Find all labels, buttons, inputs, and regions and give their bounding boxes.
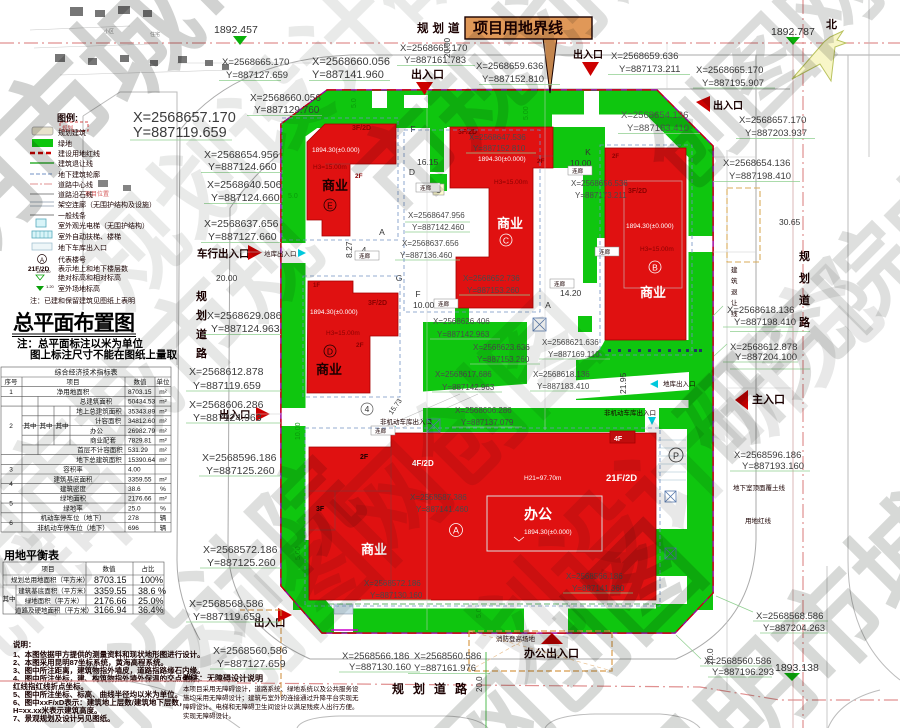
svg-text:H3=15.00m: H3=15.00m (326, 330, 360, 337)
svg-text:连廊: 连廊 (572, 167, 584, 175)
svg-text:%: % (160, 486, 166, 493)
svg-text:A: A (40, 258, 44, 264)
svg-text:Y=887130.160: Y=887130.160 (349, 662, 411, 673)
svg-text:室外场地标高: 室外场地标高 (58, 284, 100, 293)
svg-text:非机动车库出入口: 非机动车库出入口 (604, 408, 656, 417)
svg-text:序号: 序号 (5, 377, 19, 386)
svg-text:用地红线: 用地红线 (745, 516, 772, 525)
svg-text:D: D (327, 347, 333, 357)
svg-text:连廊: 连廊 (438, 300, 450, 308)
svg-text:F: F (415, 289, 420, 299)
svg-text:占比: 占比 (142, 564, 156, 573)
svg-text:Y=887136.460: Y=887136.460 (400, 251, 453, 260)
svg-text:1890.00: 1890.00 (36, 269, 51, 274)
svg-text:实现无障碍设计。: 实现无障碍设计。 (183, 711, 235, 720)
svg-text:总平面布置图: 总平面布置图 (13, 311, 135, 335)
svg-text:10.00: 10.00 (295, 422, 302, 440)
svg-text:5.0: 5.0 (288, 193, 298, 200)
svg-text:E: E (327, 201, 333, 211)
svg-text:K: K (585, 147, 591, 157)
svg-text:1894.30(±0.000): 1894.30(±0.000) (310, 309, 358, 316)
svg-text:X=2568659.636: X=2568659.636 (611, 51, 678, 62)
svg-text:3166.94: 3166.94 (94, 605, 127, 615)
svg-text:C: C (503, 236, 509, 246)
svg-text:1.20: 1.20 (46, 284, 55, 289)
svg-text:30.65: 30.65 (779, 217, 801, 227)
svg-text:21.95: 21.95 (618, 372, 628, 394)
svg-text:X=2568596.186: X=2568596.186 (202, 452, 277, 464)
svg-text:X=2568652.736: X=2568652.736 (463, 274, 520, 283)
svg-text:4F: 4F (614, 436, 623, 443)
svg-text:m²: m² (159, 496, 167, 503)
svg-text:8.27: 8.27 (344, 241, 354, 258)
svg-text:Y=887173.211: Y=887173.211 (619, 64, 680, 75)
svg-text:1: 1 (9, 389, 13, 396)
svg-text:10.00: 10.00 (413, 300, 435, 310)
svg-text:连廊: 连廊 (359, 252, 371, 260)
svg-text:X=2568637.656: X=2568637.656 (402, 239, 459, 248)
svg-text:H3=15.00m: H3=15.00m (640, 246, 674, 253)
svg-text:2F: 2F (537, 158, 545, 165)
svg-text:Y=887125.260: Y=887125.260 (206, 465, 275, 477)
svg-text:4: 4 (365, 404, 370, 414)
svg-text:X=2568560.586: X=2568560.586 (414, 651, 481, 662)
svg-text:2: 2 (9, 423, 13, 430)
svg-text:G: G (396, 273, 403, 283)
svg-text:筑: 筑 (731, 276, 738, 285)
svg-text:Y=887153.260: Y=887153.260 (467, 286, 520, 295)
svg-text:Y=887173.211: Y=887173.211 (575, 191, 627, 200)
svg-text:H21=97.70m: H21=97.70m (524, 475, 561, 482)
svg-text:X=2568566.186: X=2568566.186 (342, 651, 409, 662)
svg-text:退: 退 (731, 287, 738, 296)
svg-text:建: 建 (731, 265, 738, 274)
svg-text:商业: 商业 (640, 285, 666, 300)
svg-text:2F: 2F (356, 342, 364, 349)
svg-text:3F/2D: 3F/2D (368, 300, 387, 307)
svg-text:14.20: 14.20 (560, 288, 582, 298)
svg-text:1894.30(±0.000): 1894.30(±0.000) (626, 223, 674, 230)
svg-text:商业: 商业 (497, 216, 523, 231)
svg-text:m²: m² (159, 476, 167, 483)
svg-text:商业: 商业 (322, 178, 348, 193)
svg-text:X=2568626.406: X=2568626.406 (433, 317, 490, 326)
svg-text:H3=15.00m: H3=15.00m (494, 179, 528, 186)
svg-text:B: B (652, 263, 658, 273)
svg-text:A: A (379, 227, 385, 237)
svg-text:m²: m² (159, 457, 167, 464)
svg-text:X=2568656.536: X=2568656.536 (571, 179, 628, 188)
svg-text:2F: 2F (612, 154, 619, 160)
svg-text:Y=887161.976: Y=887161.976 (414, 663, 476, 674)
svg-text:一般线条: 一般线条 (58, 211, 86, 220)
svg-text:Y=887124.963: Y=887124.963 (193, 412, 262, 424)
svg-text:3F/2D: 3F/2D (628, 188, 647, 195)
svg-text:连廊: 连廊 (554, 280, 566, 288)
svg-text:商业: 商业 (316, 362, 342, 377)
svg-text:连廊: 连廊 (599, 248, 611, 256)
svg-text:Y=887198.410: Y=887198.410 (729, 171, 791, 182)
